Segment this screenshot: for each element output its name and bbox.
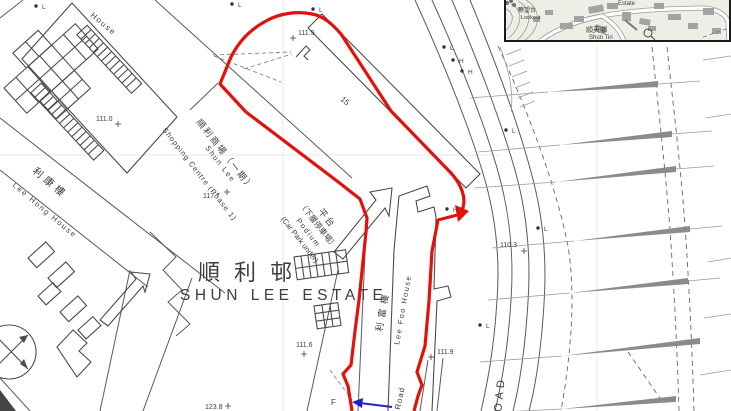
inset-label-estate: Estate (618, 1, 636, 7)
lamp-post-marker: L (442, 45, 454, 52)
svg-text:123.8: 123.8 (205, 404, 223, 411)
svg-text:H: H (459, 58, 464, 65)
svg-text:L: L (42, 4, 46, 11)
bottom-left-structures (0, 325, 91, 411)
staircase-strip (31, 83, 104, 160)
podium-block (22, 3, 177, 173)
label-road-partial: Road (393, 386, 407, 410)
hydrant-marker: H (445, 207, 458, 214)
spot-height: 111.6 (296, 342, 313, 357)
gridded-building (0, 9, 114, 131)
lamp-post-marker: L (504, 128, 516, 135)
inset-label-shun-tin-cn: 順天邨 (586, 26, 607, 34)
label-lee-foo-en: Lee Foo House (392, 274, 413, 345)
label-lee-hong-en: Lee Hong House (11, 181, 79, 240)
svg-text:H: H (453, 207, 458, 214)
building-15 (296, 14, 480, 188)
site-boundary-red (220, 13, 469, 411)
svg-text:H: H (468, 69, 473, 76)
lamp-post-marker: L (34, 4, 46, 11)
svg-text:L: L (512, 128, 516, 135)
boundary-right (414, 214, 461, 411)
label-estate-cn: 順利邨 (198, 260, 306, 285)
svg-text:111.6: 111.6 (296, 342, 313, 349)
small-buildings (28, 242, 101, 339)
label-building-15: 15 (339, 95, 352, 108)
spot-height: 111.9 (428, 349, 454, 360)
hydrant-marker: H (460, 69, 473, 76)
label-lee-hong-cn: 利康樓 (30, 164, 71, 201)
spot-height: 111.0 (96, 116, 121, 127)
svg-text:111.0: 111.0 (96, 116, 113, 123)
spot-height: 123.8 (205, 403, 231, 411)
spot-height: 110.3 (500, 242, 527, 254)
lamp-post-marker: L (230, 2, 242, 9)
svg-text:110.3: 110.3 (500, 242, 517, 249)
map-labels: House 利康樓 Lee Hong House 順利商場（一期） Shun L… (11, 11, 508, 411)
label-house-partial: House (89, 11, 118, 38)
label-estate-en: SHUN LEE ESTATE (180, 287, 387, 304)
lamp-post-marker: L (478, 323, 490, 330)
label-f-partial: F (331, 398, 336, 407)
spot-height: 111.5 (290, 30, 315, 41)
inset-label-lookout-cn: 瞭望台 (518, 6, 536, 14)
svg-text:L: L (319, 7, 323, 14)
svg-text:L: L (450, 45, 454, 52)
svg-text:111.5: 111.5 (298, 30, 315, 37)
svg-text:117.7: 117.7 (203, 193, 220, 200)
site-plan-map: House 利康樓 Lee Hong House 順利商場（一期） Shun L… (0, 0, 731, 411)
svg-text:111.9: 111.9 (437, 349, 454, 356)
label-podium-group: 平台 （下層停車場） Podium (Car Park under) (279, 193, 349, 265)
svg-text:L: L (238, 2, 242, 9)
slope-ticks (500, 47, 535, 112)
map-canvas: House 利康樓 Lee Hong House 順利商場（一期） Shun L… (0, 0, 731, 411)
label-road-main: ROAD (491, 376, 508, 411)
svg-text:L: L (544, 226, 548, 233)
inset-map: 瞭望台 Lookout Estate 順天邨 Shun Tin (505, 0, 730, 41)
walkway-arrows (100, 188, 392, 326)
inset-label-lookout-en: Lookout (521, 15, 541, 21)
svg-text:L: L (486, 323, 490, 330)
